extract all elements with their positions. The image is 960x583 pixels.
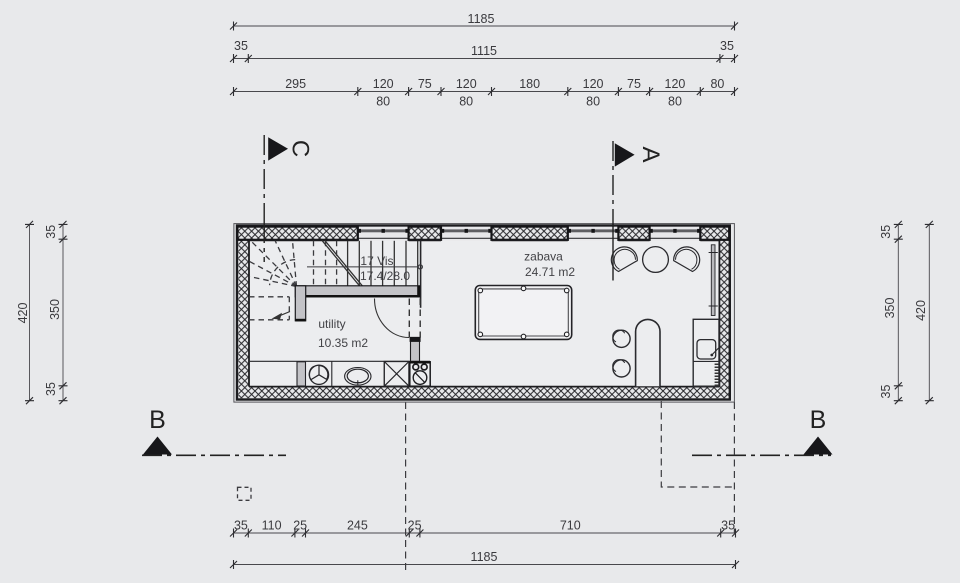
svg-text:120: 120 <box>456 77 477 91</box>
svg-text:80: 80 <box>668 95 682 109</box>
svg-text:120: 120 <box>665 77 686 91</box>
svg-text:17 Vis: 17 Vis <box>360 254 393 268</box>
svg-text:350: 350 <box>883 298 897 319</box>
svg-text:B: B <box>149 406 166 434</box>
svg-text:35: 35 <box>44 382 58 396</box>
svg-text:35: 35 <box>720 39 734 53</box>
svg-text:17.4/28.0: 17.4/28.0 <box>360 269 410 283</box>
svg-text:295: 295 <box>285 77 306 91</box>
svg-text:420: 420 <box>16 303 30 324</box>
svg-text:C: C <box>287 140 314 157</box>
svg-text:80: 80 <box>459 95 473 109</box>
svg-text:A: A <box>637 146 664 162</box>
svg-text:utility: utility <box>318 317 345 331</box>
svg-text:35: 35 <box>879 385 893 399</box>
svg-text:35: 35 <box>721 519 735 533</box>
svg-text:35: 35 <box>879 225 893 239</box>
svg-text:1185: 1185 <box>471 550 498 564</box>
svg-text:35: 35 <box>44 225 58 239</box>
svg-text:24.71 m2: 24.71 m2 <box>525 265 575 279</box>
svg-text:245: 245 <box>347 519 368 533</box>
svg-text:10.35 m2: 10.35 m2 <box>318 336 368 350</box>
svg-text:75: 75 <box>418 77 432 91</box>
svg-text:B: B <box>810 406 827 434</box>
svg-text:120: 120 <box>583 77 604 91</box>
svg-text:zabava: zabava <box>524 250 563 264</box>
svg-text:110: 110 <box>262 519 282 533</box>
svg-text:80: 80 <box>376 95 390 109</box>
svg-text:80: 80 <box>710 77 724 91</box>
svg-text:420: 420 <box>914 300 928 321</box>
svg-text:25: 25 <box>408 519 422 533</box>
svg-text:25: 25 <box>293 519 307 533</box>
svg-text:710: 710 <box>560 519 581 533</box>
svg-text:1185: 1185 <box>468 12 495 26</box>
svg-text:35: 35 <box>234 519 248 533</box>
svg-text:75: 75 <box>627 77 641 91</box>
svg-text:35: 35 <box>234 39 248 53</box>
svg-text:120: 120 <box>373 77 394 91</box>
svg-text:180: 180 <box>519 77 540 91</box>
svg-text:80: 80 <box>586 95 600 109</box>
svg-text:1115: 1115 <box>471 44 497 58</box>
svg-text:350: 350 <box>48 299 62 320</box>
